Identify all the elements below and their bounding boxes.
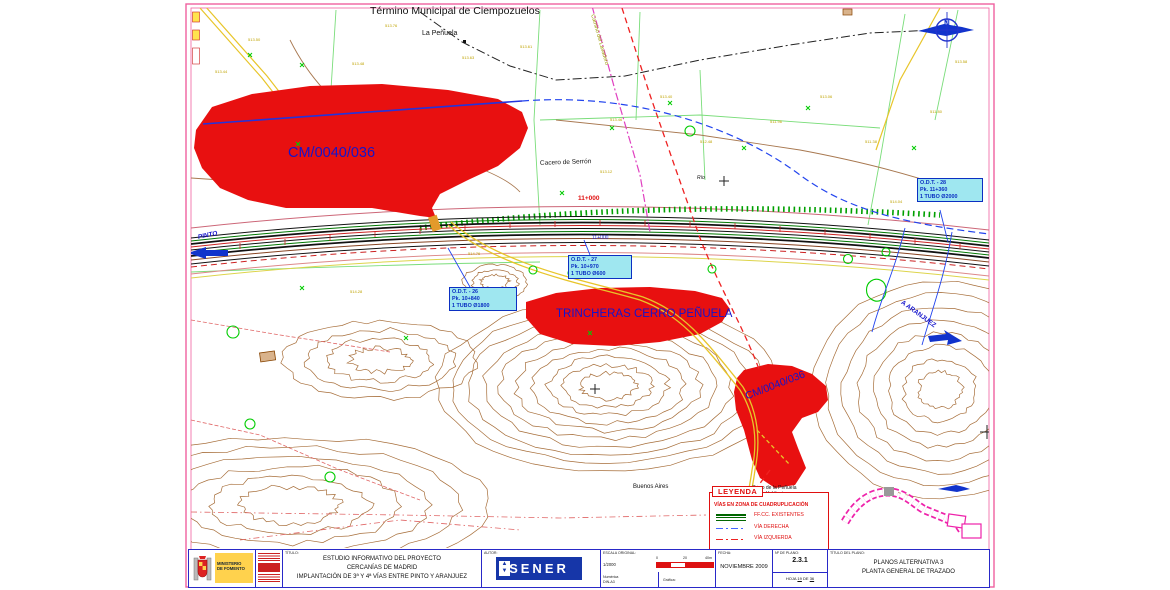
plano-num-value: 2.3.1 [773,557,827,564]
odt-line: Pk. 10+840 [452,296,514,303]
via-izquierda-symbol [716,536,746,543]
subunit-text-block [258,563,280,572]
elevation-label: 512.48 [700,140,712,144]
map-drawing [0,0,1170,590]
odt-box-26: O.D.T. - 26 Pk. 10+840 1 TUBO Ø1800 [449,287,517,311]
plan-number-cell: Nº DE PLANO: 2.3.1 HOJA 19 DE 36 [773,550,828,587]
odt-line: Pk. 10+970 [571,264,629,271]
area2-label: TRINCHERAS CERRO PEÑUELA [556,308,732,320]
elevation-label: 513.48 [352,62,364,66]
elevation-label: 513.40 [660,95,672,99]
titulo-plano-label: TÍTULO DEL PLANO: [830,551,865,555]
legend-item-via-derecha: VÍA DERECHA [716,524,824,533]
spain-coat-of-arms [190,552,214,585]
plano-line2: PLANTA GENERAL DE TRAZADO [828,569,989,575]
elevation-label: 513.63 [462,56,474,60]
plano-num-label: Nº DE PLANO: [775,551,799,555]
project-line2: CERCANÍAS DE MADRID [283,565,481,571]
elevation-label: 514.76 [468,252,480,256]
escala-numerica: Numérica [603,575,618,579]
ministry-name-2: DE FOMENTO [217,566,253,571]
project-line3: IMPLANTACIÓN DE 3ª Y 4ª VÍAS ENTRE PINTO… [283,574,481,580]
scalebar-40: 40m [705,556,712,560]
autor-label: AUTOR: [484,551,498,555]
legend-item-ffcc: FF.CC. EXISTENTES [716,512,824,521]
hoja-de: DE [803,576,809,581]
legend-title: LEYENDA [712,486,763,497]
sheet-title-cell: TÍTULO DEL PLANO: PLANOS ALTERNATIVA 3 P… [828,550,989,587]
project-title-cell: TÍTULO: ESTUDIO INFORMATIVO DEL PROYECTO… [283,550,482,587]
sener-logo-icon: ▲▼ [499,561,510,576]
fecha-label: FECHA: [718,551,731,555]
la-penuela-dot [463,40,466,43]
elevation-label: 513.06 [820,95,832,99]
elevation-label: 514.04 [890,200,902,204]
odt-box-27: O.D.T. - 27 Pk. 10+970 1 TUBO Ø600 [568,255,632,279]
escala-label: ESCALA ORIGINAL: [603,551,636,555]
hoja-total: 36 [810,576,814,581]
hoja-row: HOJA 19 DE 36 [773,576,827,581]
rio-label: Río [697,176,705,181]
odt-line: O.D.T. - 28 [920,180,980,187]
escala-din: DIN-A3 [603,580,615,584]
buenos-aires-label: Buenos Aires [633,484,668,490]
odt-line: 1 TUBO Ø600 [571,271,629,278]
odt-line: O.D.T. - 26 [452,289,514,296]
municipality-label: Término Municipal de Ciempozuelos [370,6,540,17]
author-cell: AUTOR: ▲▼ SENER [482,550,601,587]
north-letter: N [944,20,950,28]
via-derecha-symbol [716,525,746,532]
sener-wordmark: SENER [509,561,569,576]
scalebar-0: 0 [656,556,658,560]
elevation-label: 514.28 [350,290,362,294]
elevation-label: 513.46 [610,118,622,122]
elevation-label: 513.76 [385,24,397,28]
inset-plane-icon [938,485,970,492]
legend-header: VÍAS EN ZONA DE CUADRUPLICACIÓN [714,502,808,508]
hoja-num: 19 [797,576,801,581]
odt-line: 1 TUBO Ø1800 [452,303,514,310]
project-line1: ESTUDIO INFORMATIVO DEL PROYECTO [283,556,481,562]
date-cell: FECHA: NOVIEMBRE 2009 [716,550,773,587]
elevation-label: 511.96 [770,120,782,124]
scale-cell: ESCALA ORIGINAL: 1/2000 Numérica DIN-A3 … [601,550,716,587]
sener-logo: ▲▼ SENER [496,557,582,580]
inset-keymap [845,485,981,538]
hoja-divider [773,572,827,573]
grafica-label: Gráfica: [663,578,676,582]
municipal-boundary-line [420,12,935,80]
elevation-label: 513.61 [520,45,532,49]
scale-divider [658,572,659,587]
escala-value: 1/2000 [603,562,616,567]
km-label-red: 11+000 [578,196,600,203]
ministry-cell: MINISTERIO DE FOMENTO [189,550,256,587]
fecha-value: NOVIEMBRE 2009 [716,564,772,570]
elevation-label: 513.44 [215,70,227,74]
elevation-label: 513.50 [248,38,260,42]
elevation-label: 511.80 [930,110,942,114]
ministry-banner: MINISTERIO DE FOMENTO [215,553,253,583]
odt-box-28: O.D.T. - 28 Pk. 11+360 1 TUBO Ø2000 [917,178,983,202]
legend: LEYENDA VÍAS EN ZONA DE CUADRUPLICACIÓN … [709,492,829,550]
plano-line1: PLANOS ALTERNATIVA 3 [828,560,989,566]
scalebar-20: 20 [683,556,687,560]
ffcc-symbol [716,513,746,520]
legend-item-label: VÍA IZQUIERDA [754,535,792,541]
title-block: MINISTERIO DE FOMENTO TÍTULO: ESTUDIO IN… [188,549,990,588]
odt-line: 1 TUBO Ø2000 [920,194,980,201]
elevation-label: 511.38 [865,140,877,144]
titulo-label: TÍTULO: [285,551,299,555]
ministry-subunit-cell [256,550,283,587]
plan-sheet: { "map": { "municipality": "Término Muni… [0,0,1170,590]
legend-item-label: FF.CC. EXISTENTES [754,512,804,518]
elevation-label: 513.58 [955,60,967,64]
north-compass-icon [918,12,974,48]
subunit-text-block [258,553,280,561]
culvert-mark [428,215,441,232]
margin-marks [193,12,200,64]
hoja-label: HOJA [786,576,796,581]
odt-line: O.D.T. - 27 [571,257,629,264]
elevation-label: 513.12 [600,170,612,174]
area1-label: CM/0040/036 [288,146,375,161]
scale-bar [656,562,714,568]
km-label-blue: 11+000 [592,236,608,241]
la-penuela-label: La Peñuela [422,30,457,37]
odt-line: Pk. 11+360 [920,187,980,194]
legend-item-label: VÍA DERECHA [754,524,789,530]
legend-item-via-izquierda: VÍA IZQUIERDA [716,535,824,544]
subunit-text-block [258,574,280,583]
